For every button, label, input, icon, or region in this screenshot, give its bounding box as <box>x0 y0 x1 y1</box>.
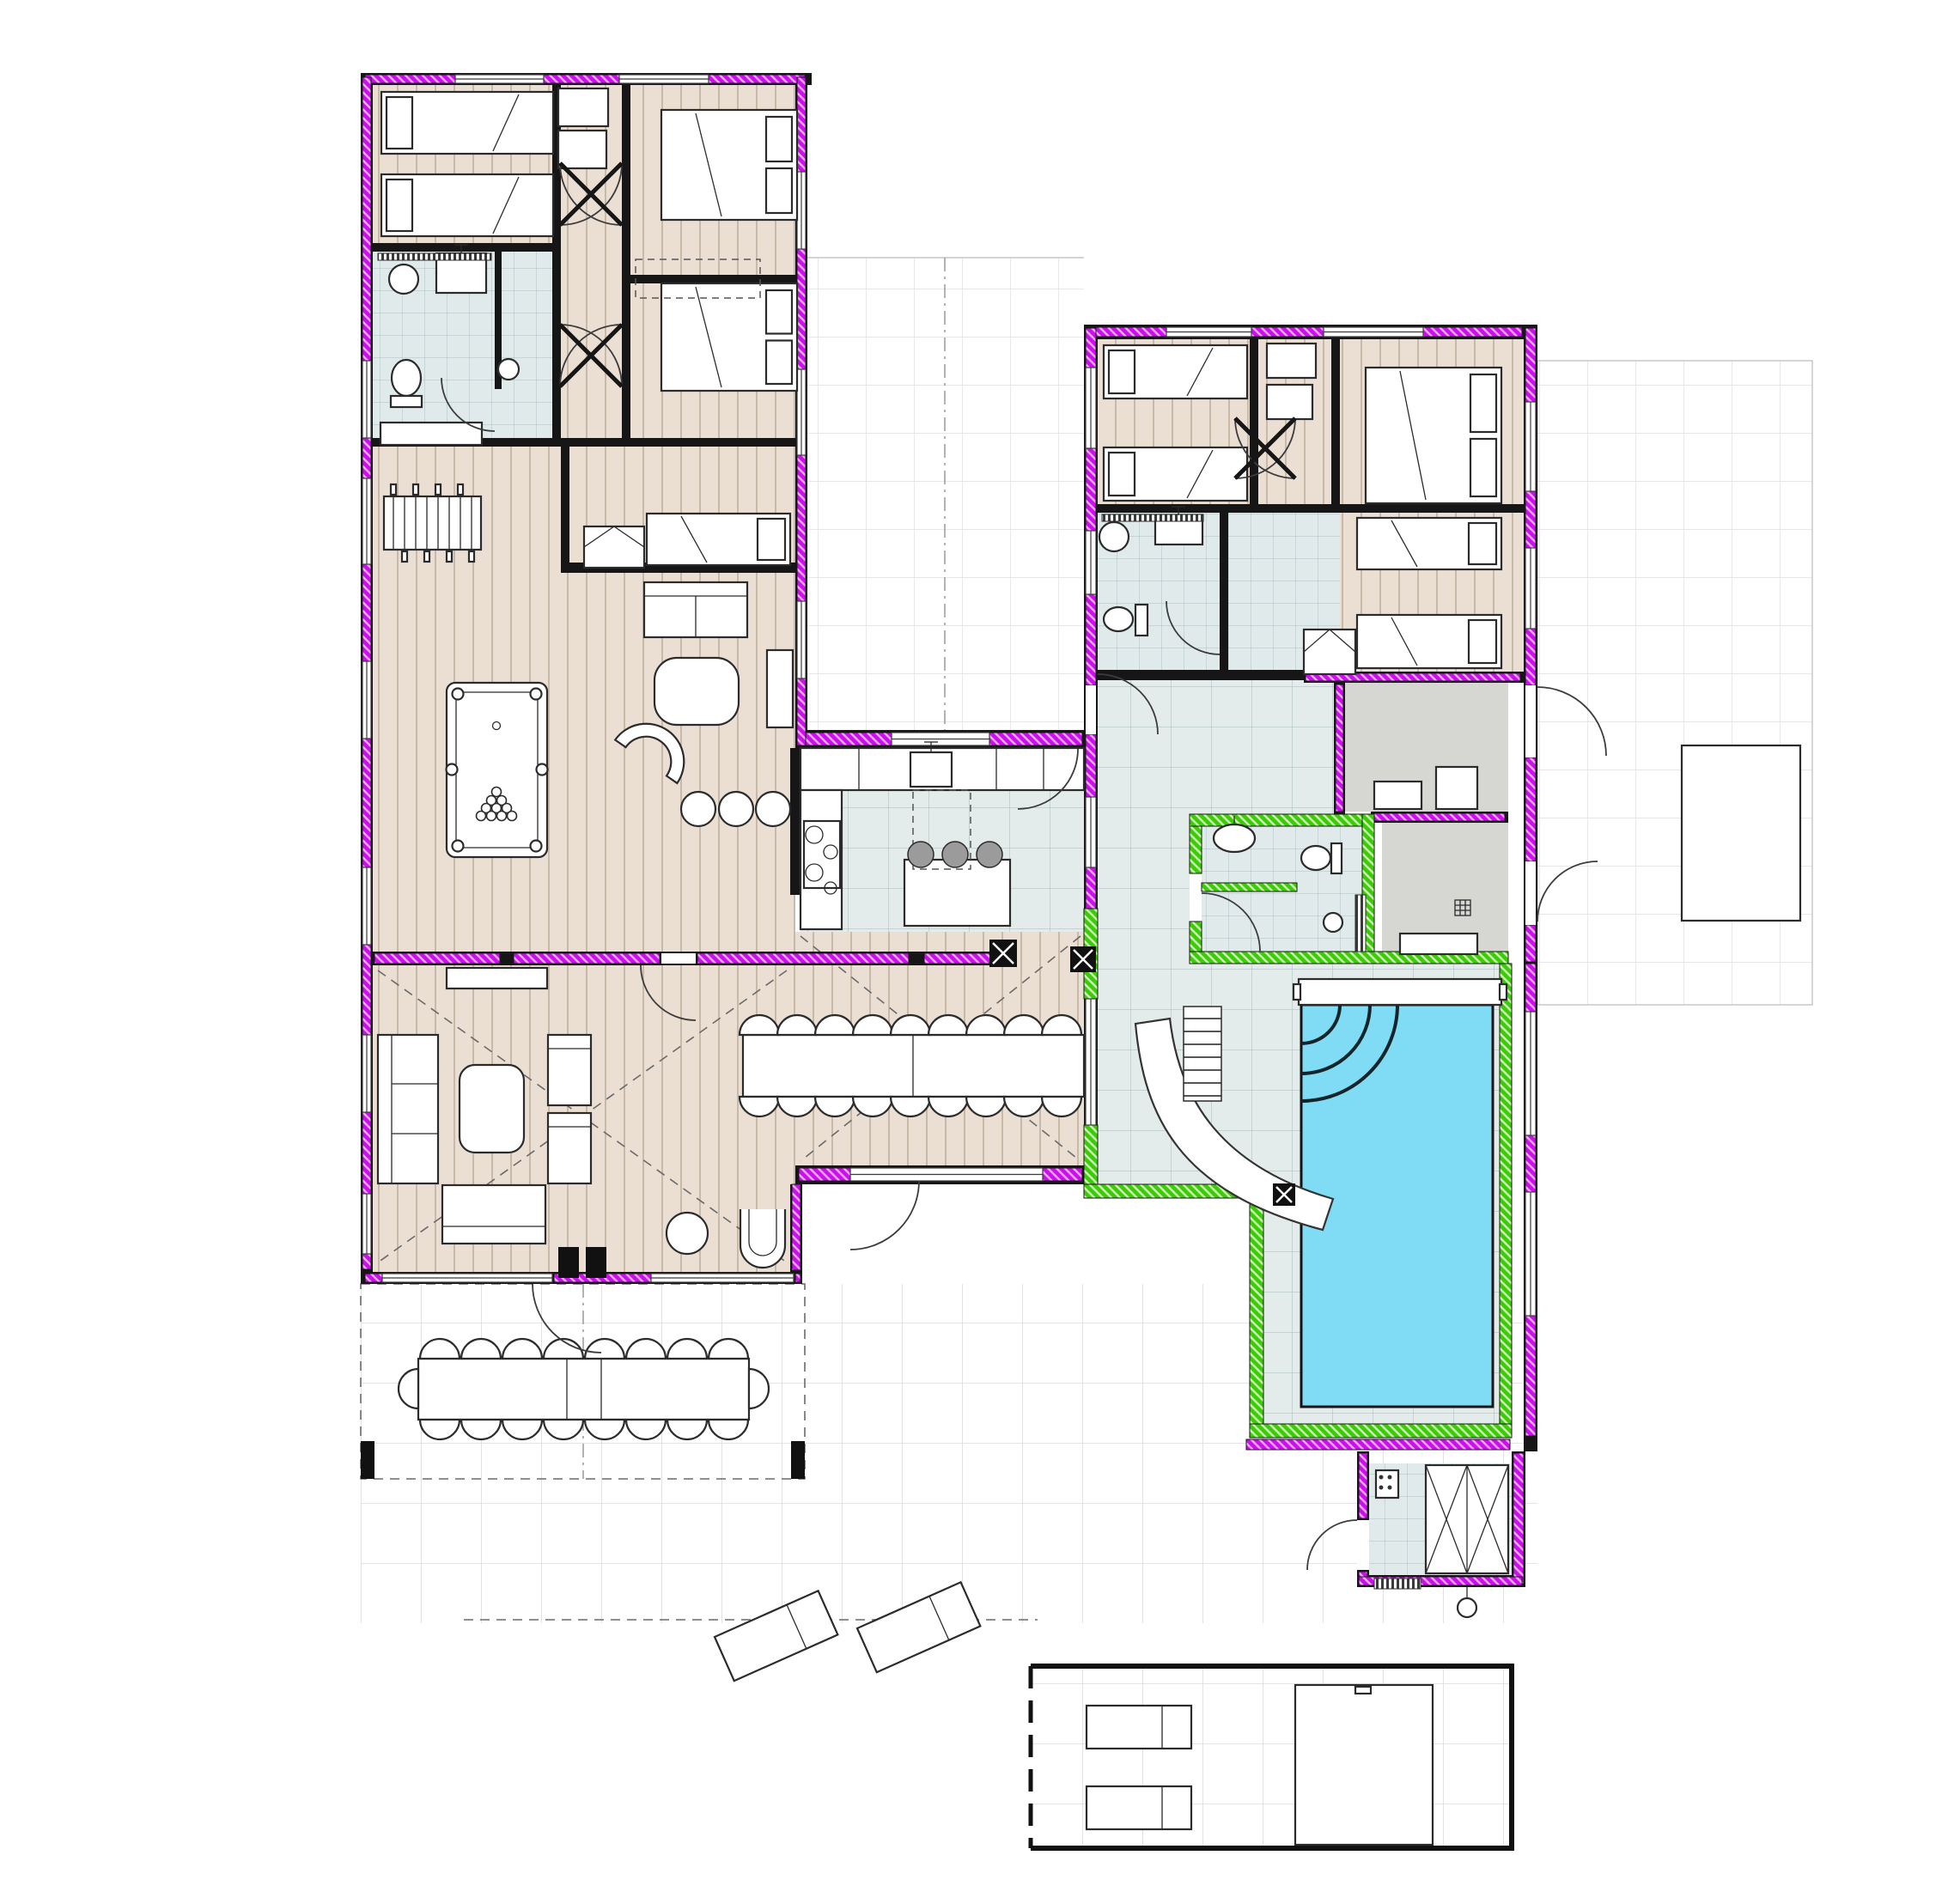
highlighted-wall <box>514 953 660 964</box>
pool-handle <box>1294 984 1300 1000</box>
pool-stairs <box>1184 1007 1221 1101</box>
highlighted-wall <box>365 75 455 83</box>
highlighted-wall <box>374 953 500 964</box>
highlighted-wall <box>697 953 909 964</box>
pillow <box>387 97 412 149</box>
door-opening <box>661 953 696 964</box>
sun-lounger <box>1087 1786 1191 1829</box>
pillow <box>1109 453 1135 496</box>
billiard-ball <box>497 812 507 821</box>
wall <box>1331 339 1340 513</box>
foosball-table <box>384 496 481 550</box>
highlighted-wall <box>795 1274 801 1282</box>
foosball-handle <box>413 484 418 495</box>
door-swing <box>850 1181 919 1250</box>
highlighted-wall <box>1086 594 1096 685</box>
stove-dot <box>1388 1475 1392 1480</box>
highlighted-wall <box>1089 327 1166 337</box>
highlighted-wall <box>1086 448 1096 531</box>
highlighted-wall <box>544 75 619 83</box>
foosball-handle <box>391 484 396 495</box>
highlighted-wall <box>362 1112 371 1194</box>
outdoor-table <box>1682 745 1800 921</box>
small-basin <box>498 359 519 380</box>
highlighted-wall <box>1086 734 1096 797</box>
shower-screen <box>378 253 491 260</box>
highlighted-wall <box>1525 328 1536 402</box>
pool-zone-wall <box>1084 1125 1098 1184</box>
wall <box>790 748 801 895</box>
bar-stool <box>908 842 934 867</box>
bar-stool <box>942 842 968 867</box>
lounge-stool <box>756 792 790 826</box>
pool-zone-wall <box>1202 883 1297 891</box>
billiard-pocket <box>531 689 542 700</box>
pool-zone-wall <box>1500 964 1512 1424</box>
wardrobe <box>1304 630 1355 674</box>
highlighted-wall <box>924 953 995 964</box>
toilet-bowl <box>392 360 421 396</box>
highlighted-wall <box>797 249 806 369</box>
highlighted-wall <box>362 945 371 1035</box>
floor-plan-page <box>0 0 1948 1904</box>
highlighted-wall <box>799 1168 850 1181</box>
wall <box>1250 339 1258 513</box>
toilet-tank <box>1331 843 1342 873</box>
bar-stool <box>977 842 1002 867</box>
highlighted-wall <box>1525 629 1536 685</box>
door-opening <box>1525 685 1536 757</box>
highlighted-wall <box>1525 925 1536 962</box>
highlighted-wall <box>1513 1453 1524 1584</box>
stove-dot <box>1379 1486 1384 1490</box>
foosball-handle <box>424 551 429 562</box>
round-side-table <box>667 1213 708 1254</box>
toilet-bowl <box>1104 607 1133 631</box>
pool-ledge <box>1299 979 1501 1005</box>
pillow <box>766 341 792 385</box>
armchair <box>548 1035 591 1105</box>
wall <box>622 275 795 283</box>
billiard-pocket <box>453 689 464 700</box>
highlighted-wall <box>362 77 371 361</box>
highlighted-wall <box>1525 757 1536 861</box>
pool-zone-wall <box>1250 1198 1263 1438</box>
highlighted-wall <box>709 75 805 83</box>
toilet-tank <box>391 396 422 407</box>
billiard-ball <box>492 788 502 797</box>
highlighted-wall <box>1525 1316 1536 1436</box>
billiard-ball <box>508 812 517 821</box>
sideboard <box>447 968 547 988</box>
highlighted-wall <box>362 1254 371 1269</box>
utility-cabinet <box>1374 782 1421 809</box>
utility-room-1-floor <box>1345 683 1508 812</box>
kitchen-sink <box>910 752 952 787</box>
pergola-post <box>361 1441 374 1479</box>
outdoor-dining-table <box>418 1359 749 1420</box>
billiard-table <box>447 683 547 857</box>
pool-bench <box>1400 934 1477 954</box>
highlighted-wall <box>797 77 806 172</box>
billiard-pocket <box>447 764 458 776</box>
billiard-pocket <box>531 841 542 852</box>
foosball-handle <box>435 484 441 495</box>
door-opening <box>1525 861 1536 925</box>
oval-side-table <box>654 658 739 725</box>
pool-zone-wall <box>1190 826 1202 873</box>
tub-chair <box>740 1209 785 1268</box>
highlighted-wall <box>1246 1439 1510 1450</box>
hot-tub-valve <box>1355 1687 1371 1694</box>
utility-room-2-floor <box>1382 823 1508 952</box>
closet <box>558 88 608 126</box>
wall <box>1220 513 1228 678</box>
sauna-stove <box>1376 1470 1398 1498</box>
highlighted-wall <box>1359 1453 1367 1518</box>
highlighted-wall <box>362 564 371 661</box>
highlighted-wall <box>797 678 806 745</box>
closet <box>1267 385 1312 419</box>
pillow <box>766 117 792 161</box>
highlighted-wall <box>1043 1168 1082 1181</box>
wall <box>1340 504 1524 513</box>
pillow <box>1469 620 1496 663</box>
highlighted-wall <box>362 438 371 478</box>
pillow <box>758 519 785 560</box>
pillow <box>1470 374 1496 432</box>
highlighted-wall <box>365 1274 382 1282</box>
sideboard <box>380 423 482 445</box>
wash-basin <box>1214 824 1255 852</box>
wall <box>561 447 569 573</box>
billiard-pocket <box>453 841 464 852</box>
highlighted-wall <box>1086 328 1096 368</box>
highlighted-wall <box>792 1184 801 1270</box>
highlighted-wall <box>797 455 806 601</box>
pool-corridor-floor <box>1098 814 1190 964</box>
three-seat-sofa <box>378 1035 438 1183</box>
highlighted-wall <box>806 733 892 745</box>
pillow <box>1109 350 1135 393</box>
pillow <box>1470 439 1496 496</box>
wall <box>1098 504 1340 513</box>
highlighted-wall <box>1336 684 1343 812</box>
toilet-bowl <box>1301 846 1330 870</box>
door-opening <box>1086 685 1096 734</box>
hall-b-lower-floor <box>1098 680 1345 814</box>
cabinet <box>767 650 793 727</box>
floor-plan-drawing <box>0 0 1948 1904</box>
highlighted-wall <box>1086 867 1096 909</box>
highlighted-wall <box>1525 491 1536 548</box>
highlighted-wall <box>1251 327 1324 337</box>
toilet-tank <box>1135 605 1147 636</box>
pillow <box>387 179 412 231</box>
pillow <box>766 168 792 213</box>
foosball-handle <box>447 551 452 562</box>
shower-head <box>1324 913 1342 932</box>
wall <box>622 85 630 447</box>
highlighted-wall <box>989 733 1082 745</box>
sun-lounger <box>1087 1706 1191 1749</box>
foosball-handle <box>469 551 474 562</box>
wall <box>622 438 795 447</box>
two-seat-sofa <box>442 1185 545 1244</box>
stove-dot <box>1388 1486 1392 1490</box>
closet <box>1267 344 1316 378</box>
closet <box>558 131 606 168</box>
pool-handle <box>1500 984 1507 1000</box>
lounge-stool <box>681 792 715 826</box>
wardrobe <box>584 526 644 568</box>
foosball-handle <box>402 551 407 562</box>
pergola-post <box>791 1441 805 1479</box>
highlighted-wall <box>1373 813 1505 821</box>
pillow <box>1469 523 1496 564</box>
billiard-pocket <box>537 764 548 776</box>
highlighted-wall <box>362 739 371 867</box>
billiard-ball <box>487 812 496 821</box>
hot-tub-frame <box>1295 1685 1433 1845</box>
door-marker <box>558 1247 579 1278</box>
door-opening <box>1357 1520 1369 1570</box>
lounge-stool <box>719 792 753 826</box>
highlighted-wall <box>1423 327 1522 337</box>
shower-screen <box>1102 514 1203 521</box>
billiard-ball <box>477 812 486 821</box>
wash-basin <box>389 265 418 294</box>
pool-zone-wall <box>1190 814 1374 826</box>
coffee-table <box>460 1065 524 1153</box>
door-marker <box>586 1247 606 1278</box>
highlighted-wall <box>1525 964 1536 1012</box>
armchair <box>548 1113 591 1183</box>
pool-zone-wall <box>1250 1424 1512 1438</box>
highlighted-wall <box>1525 1135 1536 1192</box>
utility-cabinet <box>1436 767 1477 809</box>
stove-dot <box>1379 1475 1384 1480</box>
wash-basin <box>1099 522 1129 551</box>
foosball-handle <box>458 484 463 495</box>
shower-screen <box>1355 895 1366 952</box>
pillow <box>766 290 792 334</box>
outdoor-shower-head <box>1458 1598 1476 1617</box>
doormat <box>1374 1579 1421 1589</box>
